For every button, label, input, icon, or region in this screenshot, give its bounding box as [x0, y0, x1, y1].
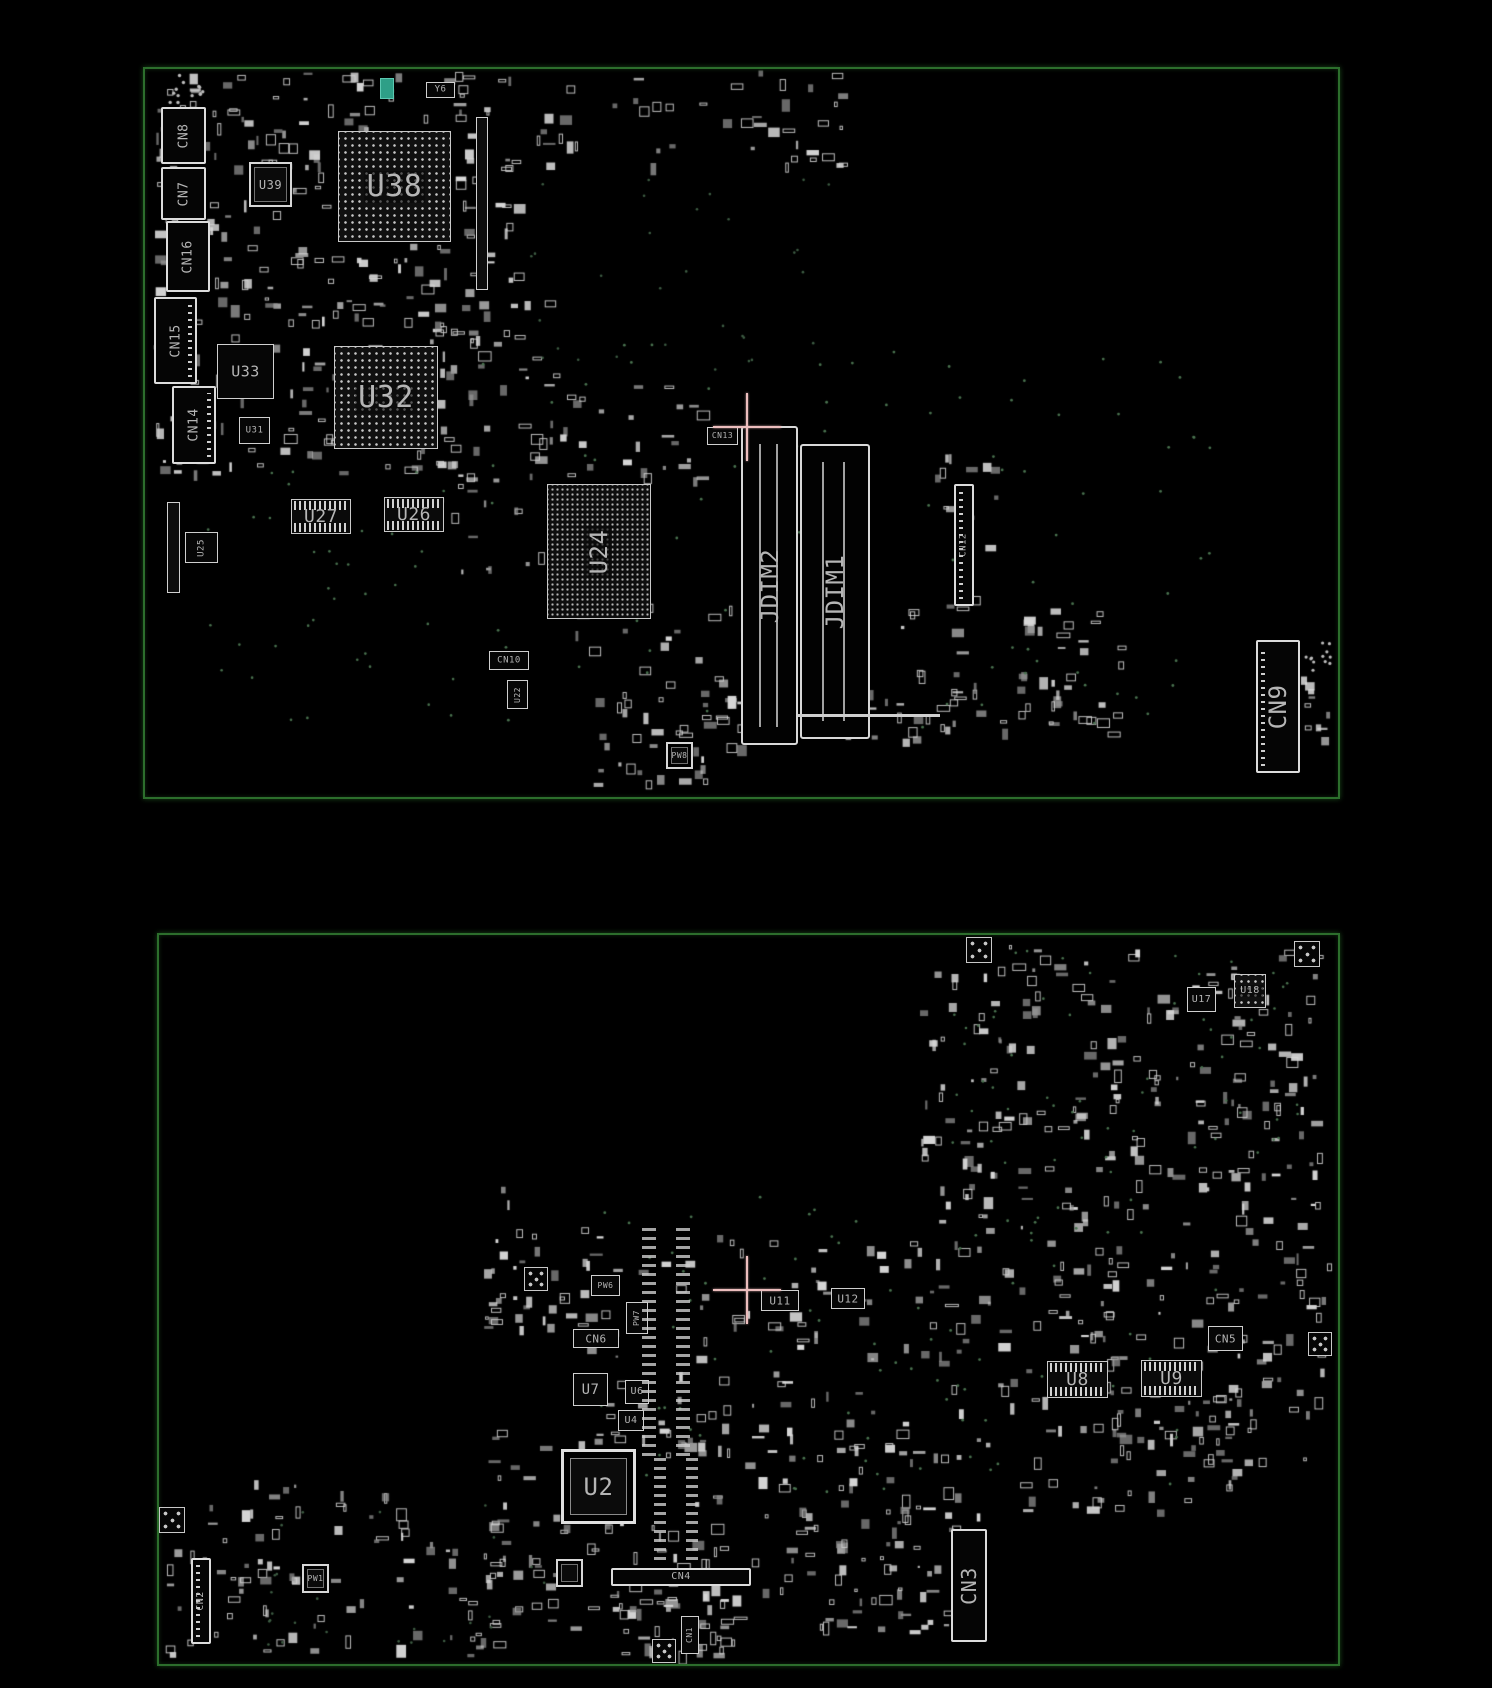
component-u27: U27: [291, 499, 351, 534]
component-u9: U9: [1141, 1360, 1202, 1397]
component-label: CN14: [188, 408, 201, 441]
component-cn3: CN3: [951, 1529, 987, 1642]
component-label: CN4: [671, 1572, 691, 1582]
component-label: U9: [1160, 1370, 1183, 1388]
component-label: U39: [259, 179, 282, 191]
component-label: PW1: [308, 1575, 324, 1583]
component-label: Y6: [435, 86, 447, 95]
bar-shape: [476, 117, 488, 290]
component-jdim2: JDIM2: [741, 426, 798, 745]
component-cn13: CN13: [707, 427, 738, 445]
component-label: CN1: [686, 1627, 694, 1643]
component-label: PW8: [672, 752, 688, 760]
component-label: U2: [584, 1475, 614, 1499]
teal-shape: [380, 78, 394, 99]
component-u8: U8: [1047, 1361, 1108, 1398]
component-label: CN9: [1266, 684, 1290, 729]
component-u4: U4: [618, 1410, 644, 1431]
registration-crosshair: [713, 426, 781, 428]
fiducial-marker: [1294, 941, 1320, 967]
component-label: CN16: [182, 240, 195, 273]
component-label: CN10: [497, 656, 521, 665]
registration-crosshair: [713, 1289, 781, 1291]
component-label: PW6: [598, 1282, 614, 1290]
component-u31: U31: [239, 417, 270, 444]
component-pw8: PW8: [666, 742, 693, 769]
component-label: U11: [769, 1295, 790, 1306]
component-u38: U38: [338, 131, 451, 242]
component-pw1: PW1: [302, 1564, 329, 1593]
component-cn6: CN6: [573, 1329, 619, 1348]
component-u26: U26: [384, 497, 444, 532]
component-cn2: CN2: [191, 1558, 211, 1644]
component-label: CN8: [177, 123, 190, 148]
component-label: U12: [837, 1293, 858, 1304]
component-u39: U39: [249, 162, 292, 207]
component-u12: U12: [831, 1288, 865, 1309]
component-cn1: CN1: [681, 1616, 699, 1654]
vdash-shape: [642, 1228, 656, 1456]
hline-shape: [798, 714, 940, 717]
vdash-shape: [686, 1452, 698, 1560]
component-label: CN3: [959, 1567, 979, 1605]
component-cn9: CN9: [1256, 640, 1300, 773]
component-u32: U32: [334, 346, 438, 449]
component-y6: Y6: [426, 82, 455, 98]
component-cn10: CN10: [489, 651, 529, 670]
fiducial-marker: [652, 1639, 676, 1663]
component-label: CN7: [177, 181, 190, 206]
component-label: U31: [246, 426, 264, 435]
component-u33: U33: [217, 344, 274, 399]
component-label: CN13: [712, 432, 733, 440]
component-u2: U2: [561, 1449, 636, 1524]
component-label: CN6: [585, 1333, 606, 1344]
component-cn5: CN5: [1208, 1326, 1243, 1351]
board-bottom-side: [157, 933, 1340, 1666]
fiducial-marker: [524, 1267, 548, 1291]
component-label: CN2: [196, 1591, 206, 1611]
component-pw6: PW6: [591, 1275, 620, 1296]
bar-shape: [167, 502, 180, 593]
component-label: U24: [586, 526, 612, 577]
component-cn16: CN16: [166, 221, 210, 292]
component-label: U18: [1237, 985, 1263, 997]
fiducial-marker: [159, 1507, 185, 1533]
component-u7: U7: [573, 1373, 608, 1406]
component-label: U27: [304, 508, 338, 526]
component-label: U32: [355, 382, 417, 414]
component-label: CN12: [960, 533, 969, 557]
component-label: U17: [1192, 995, 1212, 1005]
component-label: U25: [197, 539, 206, 557]
pcb-boardview: CN8CN7CN16CN15CN14U39U38U33U31U32U25U27U…: [0, 0, 1492, 1688]
component-u17: U17: [1187, 987, 1216, 1012]
component-u18: U18: [1234, 974, 1266, 1008]
pin-column: [188, 304, 192, 377]
fiducial-marker: [1308, 1332, 1332, 1356]
component-label: U33: [231, 364, 260, 379]
component-u11: U11: [761, 1290, 799, 1311]
component-label: PW7: [633, 1310, 641, 1326]
component-cn14: CN14: [172, 386, 216, 464]
component-u25: U25: [185, 532, 218, 563]
pin-column: [207, 393, 211, 457]
component-layer: CN8CN7CN16CN15CN14U39U38U33U31U32U25U27U…: [0, 0, 1492, 1688]
component-u24: U24: [547, 484, 651, 619]
component-label: U8: [1066, 1371, 1089, 1389]
component-cn7: CN7: [161, 167, 206, 220]
component-label: U26: [397, 506, 431, 524]
vdash-shape: [654, 1452, 666, 1560]
component-u22: U22: [507, 680, 528, 709]
component-cn12: CN12: [954, 484, 974, 606]
fiducial-marker: [966, 937, 992, 963]
component-label: CN15: [169, 324, 182, 357]
component-label: U38: [364, 171, 426, 203]
qfp-shape: [556, 1559, 583, 1587]
component-label: JDIM1: [823, 554, 847, 629]
component-cn15: CN15: [154, 297, 197, 384]
component-label: U4: [624, 1416, 637, 1426]
component-label: U22: [514, 687, 522, 703]
component-label: U7: [582, 1383, 600, 1397]
component-jdim1: JDIM1: [800, 444, 870, 739]
component-label: JDIM2: [758, 548, 782, 623]
component-label: CN5: [1215, 1333, 1236, 1344]
component-cn8: CN8: [161, 107, 206, 164]
component-cn4: CN4: [611, 1568, 751, 1586]
vdash-shape: [676, 1228, 690, 1456]
